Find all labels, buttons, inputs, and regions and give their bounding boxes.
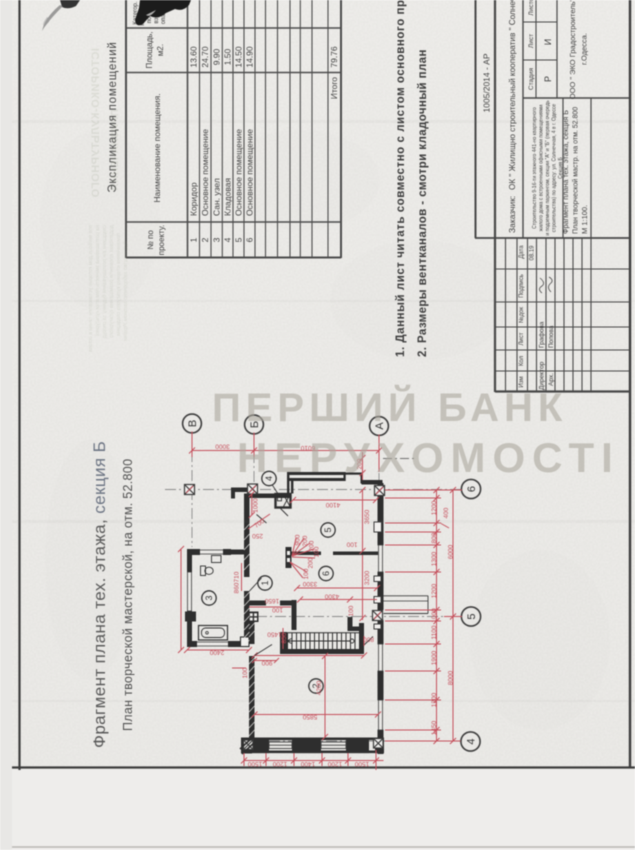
svg-text:В: В bbox=[187, 420, 199, 427]
svg-text:860: 860 bbox=[234, 582, 241, 593]
svg-text:№док: №док bbox=[518, 307, 525, 323]
svg-text:Лист: Лист bbox=[528, 34, 535, 48]
svg-text:1000: 1000 bbox=[431, 608, 438, 623]
svg-text:1.50: 1.50 bbox=[223, 48, 233, 65]
svg-text:200: 200 bbox=[308, 557, 315, 568]
svg-text:5850: 5850 bbox=[302, 713, 317, 720]
svg-text:4: 4 bbox=[466, 738, 478, 744]
svg-text:1500: 1500 bbox=[354, 760, 369, 767]
svg-text:08.19: 08.19 bbox=[530, 245, 536, 261]
svg-text:2400: 2400 bbox=[209, 649, 224, 656]
svg-text:1005/2014 - АР: 1005/2014 - АР bbox=[482, 53, 492, 112]
svg-text:4300: 4300 bbox=[324, 593, 339, 600]
svg-text:Подпись: Подпись bbox=[519, 274, 525, 298]
svg-text:1450: 1450 bbox=[431, 720, 438, 735]
svg-text:800: 800 bbox=[363, 636, 374, 643]
svg-text:1200: 1200 bbox=[327, 760, 342, 767]
svg-text:Площадь,: Площадь, bbox=[145, 31, 154, 68]
svg-text:900: 900 bbox=[295, 534, 302, 545]
svg-text:1300: 1300 bbox=[431, 551, 438, 566]
svg-text:Строительство 9-16-ти этажного: Строительство 9-16-ти этажного 441-но кв… bbox=[532, 107, 538, 229]
svg-text:5: 5 bbox=[323, 527, 333, 532]
svg-text:Р: Р bbox=[543, 76, 553, 82]
svg-text:1900: 1900 bbox=[431, 650, 438, 665]
svg-text:1: 1 bbox=[189, 237, 199, 242]
svg-text:4: 4 bbox=[223, 237, 233, 242]
svg-text:100: 100 bbox=[242, 667, 249, 678]
svg-text:Основное помещение: Основное помещение bbox=[200, 129, 210, 216]
svg-text:Дата: Дата bbox=[519, 245, 525, 259]
svg-text:3200: 3200 bbox=[364, 570, 371, 585]
svg-text:24.70: 24.70 bbox=[200, 46, 210, 68]
svg-text:3000: 3000 bbox=[215, 443, 230, 450]
svg-text:400: 400 bbox=[443, 507, 450, 518]
svg-text:ОК " Жилищно строительный кооп: ОК " Жилищно строительный кооператив " С… bbox=[508, 0, 517, 190]
svg-text:И: И bbox=[543, 39, 553, 45]
svg-text:1650: 1650 bbox=[264, 597, 279, 604]
svg-text:13.60: 13.60 bbox=[189, 46, 199, 68]
svg-text:3: 3 bbox=[204, 595, 214, 600]
svg-text:Арх.: Арх. bbox=[548, 373, 555, 386]
svg-text:100: 100 bbox=[346, 541, 357, 548]
svg-text:Фрагмент плана тех. этажа, сек: Фрагмент плана тех. этажа, секция Б bbox=[561, 110, 570, 234]
svg-text:Кол: Кол bbox=[519, 355, 525, 366]
svg-text:Лист: Лист bbox=[519, 332, 525, 345]
svg-text:4200: 4200 bbox=[316, 680, 323, 695]
svg-text:79.76: 79.76 bbox=[329, 46, 339, 68]
svg-text:НЕРУХОМОСТІ: НЕРУХОМОСТІ bbox=[237, 434, 620, 481]
svg-text:Заказчик:: Заказчик: bbox=[507, 196, 517, 233]
svg-text:6: 6 bbox=[245, 237, 255, 242]
svg-text:100: 100 bbox=[348, 605, 355, 616]
svg-text:Итого: Итого bbox=[329, 77, 339, 100]
svg-text:План творческой мастр. на отм.: План творческой мастр. на отм. 52.800 bbox=[572, 107, 580, 234]
svg-text:800: 800 bbox=[431, 532, 438, 543]
svg-text:1200: 1200 bbox=[431, 692, 438, 707]
svg-text:1200: 1200 bbox=[431, 583, 438, 598]
svg-text:ООО " ЭКО Градостроитель": ООО " ЭКО Градостроитель" bbox=[568, 0, 577, 99]
svg-text:1450: 1450 bbox=[267, 631, 282, 638]
svg-text:14.50: 14.50 bbox=[234, 46, 244, 68]
svg-text:710: 710 bbox=[234, 571, 241, 582]
svg-text:250: 250 bbox=[252, 532, 263, 539]
svg-text:1400: 1400 bbox=[300, 760, 315, 767]
svg-text:1200: 1200 bbox=[431, 500, 438, 515]
svg-text:900: 900 bbox=[261, 659, 272, 666]
svg-text:Коридор: Коридор bbox=[189, 182, 199, 216]
svg-text:6: 6 bbox=[321, 571, 331, 576]
svg-text:3300: 3300 bbox=[302, 580, 317, 587]
svg-text:4100: 4100 bbox=[325, 501, 340, 508]
svg-text:1: 1 bbox=[260, 580, 270, 585]
svg-text:14.90: 14.90 bbox=[245, 46, 255, 68]
svg-text:850: 850 bbox=[281, 632, 288, 643]
svg-text:Попова: Попова bbox=[548, 325, 555, 348]
svg-text:1500: 1500 bbox=[247, 760, 262, 767]
svg-text:100: 100 bbox=[314, 546, 321, 557]
svg-text:м2.: м2. bbox=[156, 44, 165, 56]
svg-text:9.90: 9.90 bbox=[212, 48, 222, 65]
svg-text:жилого дома с встроенными офис: жилого дома с встроенными офисными помещ… bbox=[539, 104, 545, 231]
svg-text:5: 5 bbox=[234, 237, 244, 242]
svg-text:1100: 1100 bbox=[431, 625, 438, 639]
svg-text:Листов: Листов bbox=[528, 0, 535, 16]
svg-text:3: 3 bbox=[212, 237, 222, 242]
svg-text:1000: 1000 bbox=[253, 498, 260, 513]
svg-text:М 1:100.: М 1:100. bbox=[580, 205, 589, 234]
svg-text:6000: 6000 bbox=[448, 544, 455, 559]
svg-text:ПЕРШИЙ БАНК: ПЕРШИЙ БАНК bbox=[212, 384, 567, 430]
svg-text:1200: 1200 bbox=[272, 760, 287, 767]
svg-text:г.Одесса.: г.Одесса. bbox=[580, 33, 589, 65]
svg-text:8000: 8000 bbox=[448, 670, 455, 685]
svg-text:Стадия: Стадия bbox=[528, 67, 535, 90]
svg-text:Сан. узел: Сан. узел bbox=[212, 178, 222, 216]
svg-text:6: 6 bbox=[466, 486, 478, 492]
svg-text:2: 2 bbox=[200, 237, 210, 242]
svg-text:100: 100 bbox=[272, 606, 283, 613]
svg-text:100: 100 bbox=[303, 568, 310, 579]
svg-text:Графова: Графова bbox=[539, 321, 546, 348]
